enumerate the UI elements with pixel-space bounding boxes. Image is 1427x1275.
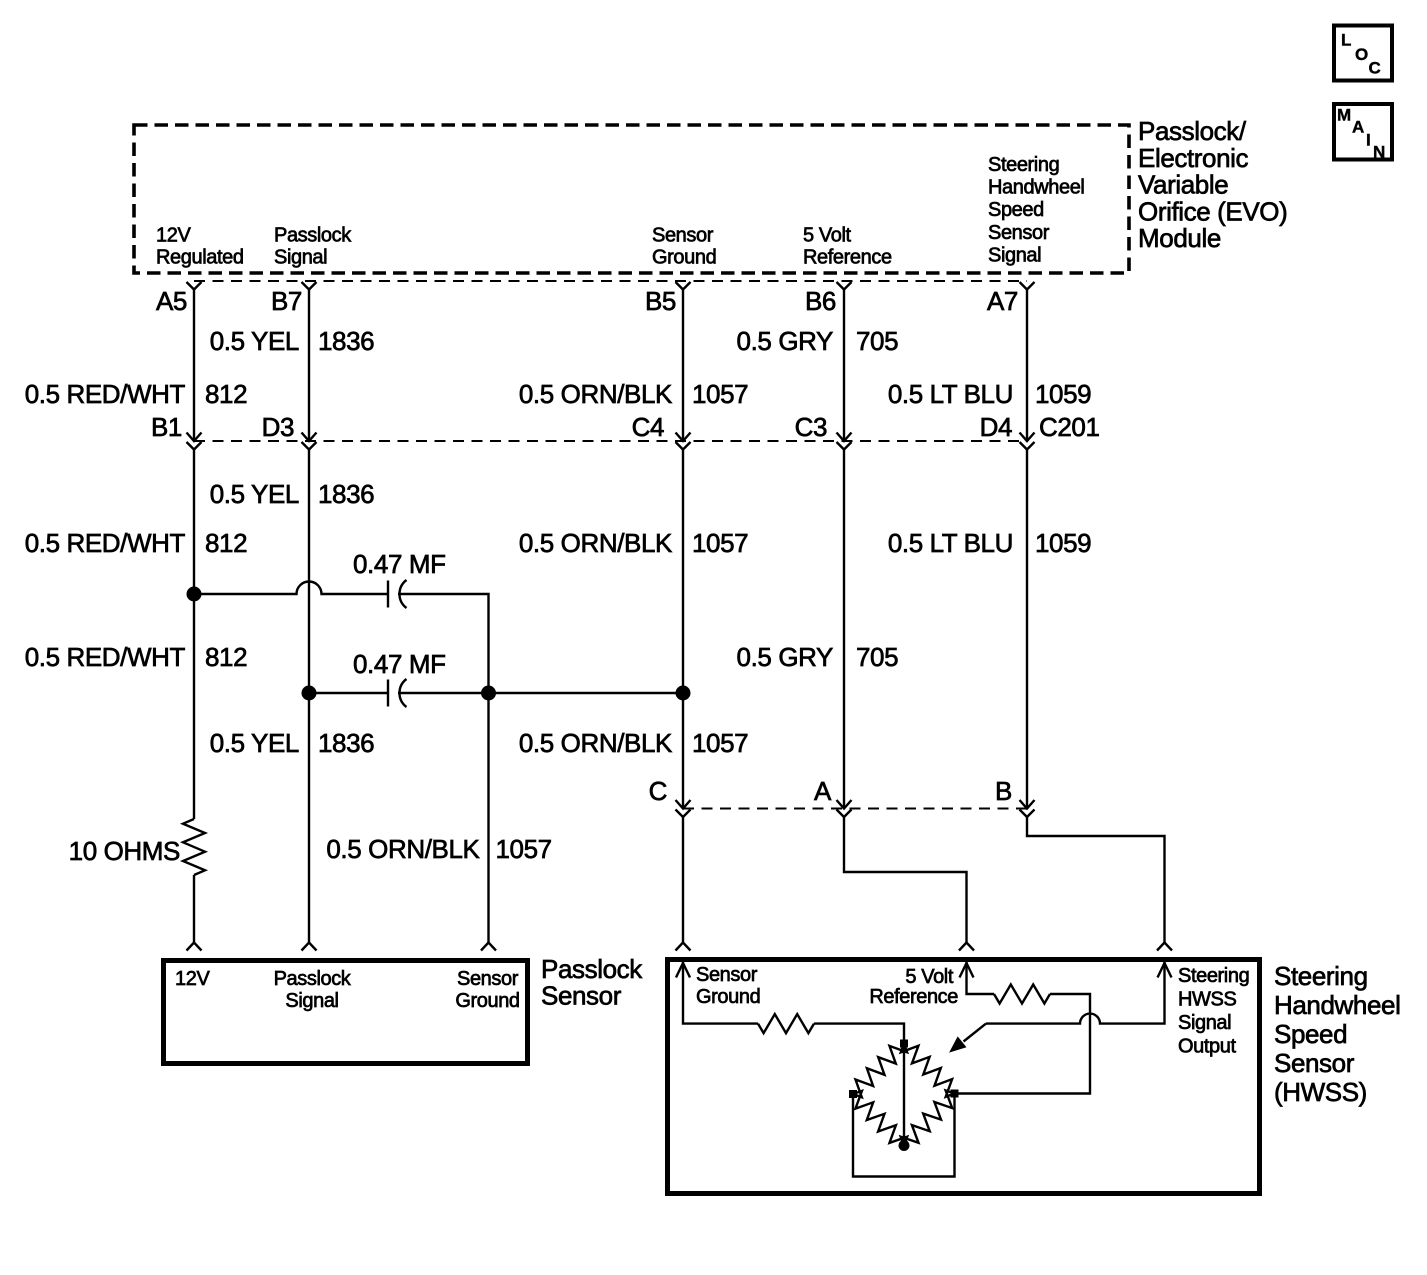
svg-text:1057: 1057 bbox=[692, 379, 748, 409]
svg-text:D4: D4 bbox=[980, 412, 1012, 442]
svg-text:812: 812 bbox=[205, 528, 247, 558]
svg-text:A: A bbox=[1352, 118, 1364, 137]
svg-text:Handwheel: Handwheel bbox=[1274, 990, 1401, 1020]
svg-text:0.5 ORN/BLK: 0.5 ORN/BLK bbox=[519, 528, 673, 558]
svg-text:1836: 1836 bbox=[318, 326, 374, 356]
svg-text:812: 812 bbox=[205, 642, 247, 672]
svg-text:Signal: Signal bbox=[988, 244, 1041, 266]
svg-text:Ground: Ground bbox=[652, 247, 716, 269]
svg-text:A7: A7 bbox=[987, 286, 1018, 316]
svg-text:B5: B5 bbox=[645, 286, 676, 316]
svg-text:0.5 GRY: 0.5 GRY bbox=[737, 642, 833, 672]
svg-text:0.5 LT BLU: 0.5 LT BLU bbox=[888, 528, 1013, 558]
svg-text:B1: B1 bbox=[151, 412, 182, 442]
svg-text:B6: B6 bbox=[805, 286, 836, 316]
svg-text:I: I bbox=[1366, 131, 1370, 150]
svg-text:812: 812 bbox=[205, 379, 247, 409]
svg-text:1836: 1836 bbox=[318, 728, 374, 758]
svg-text:Steering: Steering bbox=[988, 154, 1059, 176]
svg-text:0.5 ORN/BLK: 0.5 ORN/BLK bbox=[326, 834, 480, 864]
svg-text:Passlock: Passlock bbox=[274, 225, 352, 247]
svg-text:0.5 RED/WHT: 0.5 RED/WHT bbox=[25, 642, 186, 672]
svg-text:C: C bbox=[649, 776, 667, 806]
svg-text:Speed: Speed bbox=[1274, 1019, 1347, 1049]
svg-text:Passlock/: Passlock/ bbox=[1138, 116, 1247, 146]
svg-text:Signal: Signal bbox=[1178, 1012, 1231, 1034]
svg-text:0.5 RED/WHT: 0.5 RED/WHT bbox=[25, 528, 186, 558]
svg-text:Reference: Reference bbox=[869, 986, 958, 1008]
svg-text:Electronic: Electronic bbox=[1138, 143, 1249, 173]
svg-text:A: A bbox=[814, 776, 832, 806]
svg-text:C201: C201 bbox=[1039, 412, 1100, 442]
svg-text:L: L bbox=[1341, 31, 1351, 50]
svg-text:D3: D3 bbox=[262, 412, 294, 442]
svg-text:Handwheel: Handwheel bbox=[988, 177, 1084, 199]
svg-text:0.5 ORN/BLK: 0.5 ORN/BLK bbox=[519, 379, 673, 409]
svg-text:5 Volt: 5 Volt bbox=[803, 225, 851, 247]
svg-text:C: C bbox=[1369, 59, 1381, 78]
svg-text:1836: 1836 bbox=[318, 479, 374, 509]
svg-text:Sensor: Sensor bbox=[988, 222, 1050, 244]
svg-text:Signal: Signal bbox=[285, 990, 338, 1012]
svg-text:1059: 1059 bbox=[1035, 379, 1091, 409]
svg-text:C3: C3 bbox=[795, 412, 827, 442]
svg-text:0.47 MF: 0.47 MF bbox=[353, 649, 446, 679]
svg-text:(HWSS): (HWSS) bbox=[1274, 1077, 1367, 1107]
svg-text:Reference: Reference bbox=[803, 247, 892, 269]
svg-text:1057: 1057 bbox=[496, 834, 552, 864]
svg-text:0.47 MF: 0.47 MF bbox=[353, 549, 446, 579]
svg-text:M: M bbox=[1337, 106, 1351, 125]
svg-text:10 OHMS: 10 OHMS bbox=[69, 836, 180, 866]
svg-text:Steering: Steering bbox=[1178, 965, 1249, 987]
svg-text:Regulated: Regulated bbox=[156, 247, 244, 269]
svg-text:Output: Output bbox=[1178, 1036, 1236, 1058]
svg-text:Signal: Signal bbox=[274, 247, 327, 269]
svg-text:Orifice (EVO): Orifice (EVO) bbox=[1138, 196, 1287, 226]
svg-text:705: 705 bbox=[856, 326, 898, 356]
svg-text:0.5 LT BLU: 0.5 LT BLU bbox=[888, 379, 1013, 409]
svg-text:Passlock: Passlock bbox=[274, 968, 352, 990]
svg-text:N: N bbox=[1373, 143, 1385, 162]
svg-text:A5: A5 bbox=[156, 286, 187, 316]
svg-text:O: O bbox=[1355, 45, 1368, 64]
svg-text:705: 705 bbox=[856, 642, 898, 672]
svg-text:Steering: Steering bbox=[1274, 961, 1368, 991]
svg-text:Sensor: Sensor bbox=[1274, 1048, 1355, 1078]
svg-text:12V: 12V bbox=[156, 225, 191, 247]
svg-text:HWSS: HWSS bbox=[1178, 989, 1236, 1011]
svg-text:Sensor: Sensor bbox=[457, 968, 519, 990]
svg-text:1057: 1057 bbox=[692, 728, 748, 758]
svg-text:0.5 YEL: 0.5 YEL bbox=[210, 728, 299, 758]
svg-text:Module: Module bbox=[1138, 223, 1221, 253]
svg-text:0.5 YEL: 0.5 YEL bbox=[210, 479, 299, 509]
svg-text:0.5 RED/WHT: 0.5 RED/WHT bbox=[25, 379, 186, 409]
svg-text:0.5 GRY: 0.5 GRY bbox=[737, 326, 833, 356]
svg-text:Speed: Speed bbox=[988, 199, 1044, 221]
svg-text:Ground: Ground bbox=[455, 990, 519, 1012]
svg-text:0.5 ORN/BLK: 0.5 ORN/BLK bbox=[519, 728, 673, 758]
svg-text:Sensor: Sensor bbox=[696, 964, 758, 986]
svg-text:1059: 1059 bbox=[1035, 528, 1091, 558]
svg-text:Sensor: Sensor bbox=[652, 225, 714, 247]
svg-text:12V: 12V bbox=[175, 968, 210, 990]
svg-text:B: B bbox=[995, 776, 1012, 806]
svg-text:1057: 1057 bbox=[692, 528, 748, 558]
svg-text:Passlock: Passlock bbox=[541, 954, 643, 984]
svg-text:Ground: Ground bbox=[696, 986, 760, 1008]
svg-text:Sensor: Sensor bbox=[541, 981, 622, 1011]
svg-text:B7: B7 bbox=[271, 286, 302, 316]
svg-text:Variable: Variable bbox=[1138, 170, 1228, 200]
svg-text:5 Volt: 5 Volt bbox=[905, 966, 953, 988]
svg-text:C4: C4 bbox=[632, 412, 664, 442]
svg-text:0.5 YEL: 0.5 YEL bbox=[210, 326, 299, 356]
